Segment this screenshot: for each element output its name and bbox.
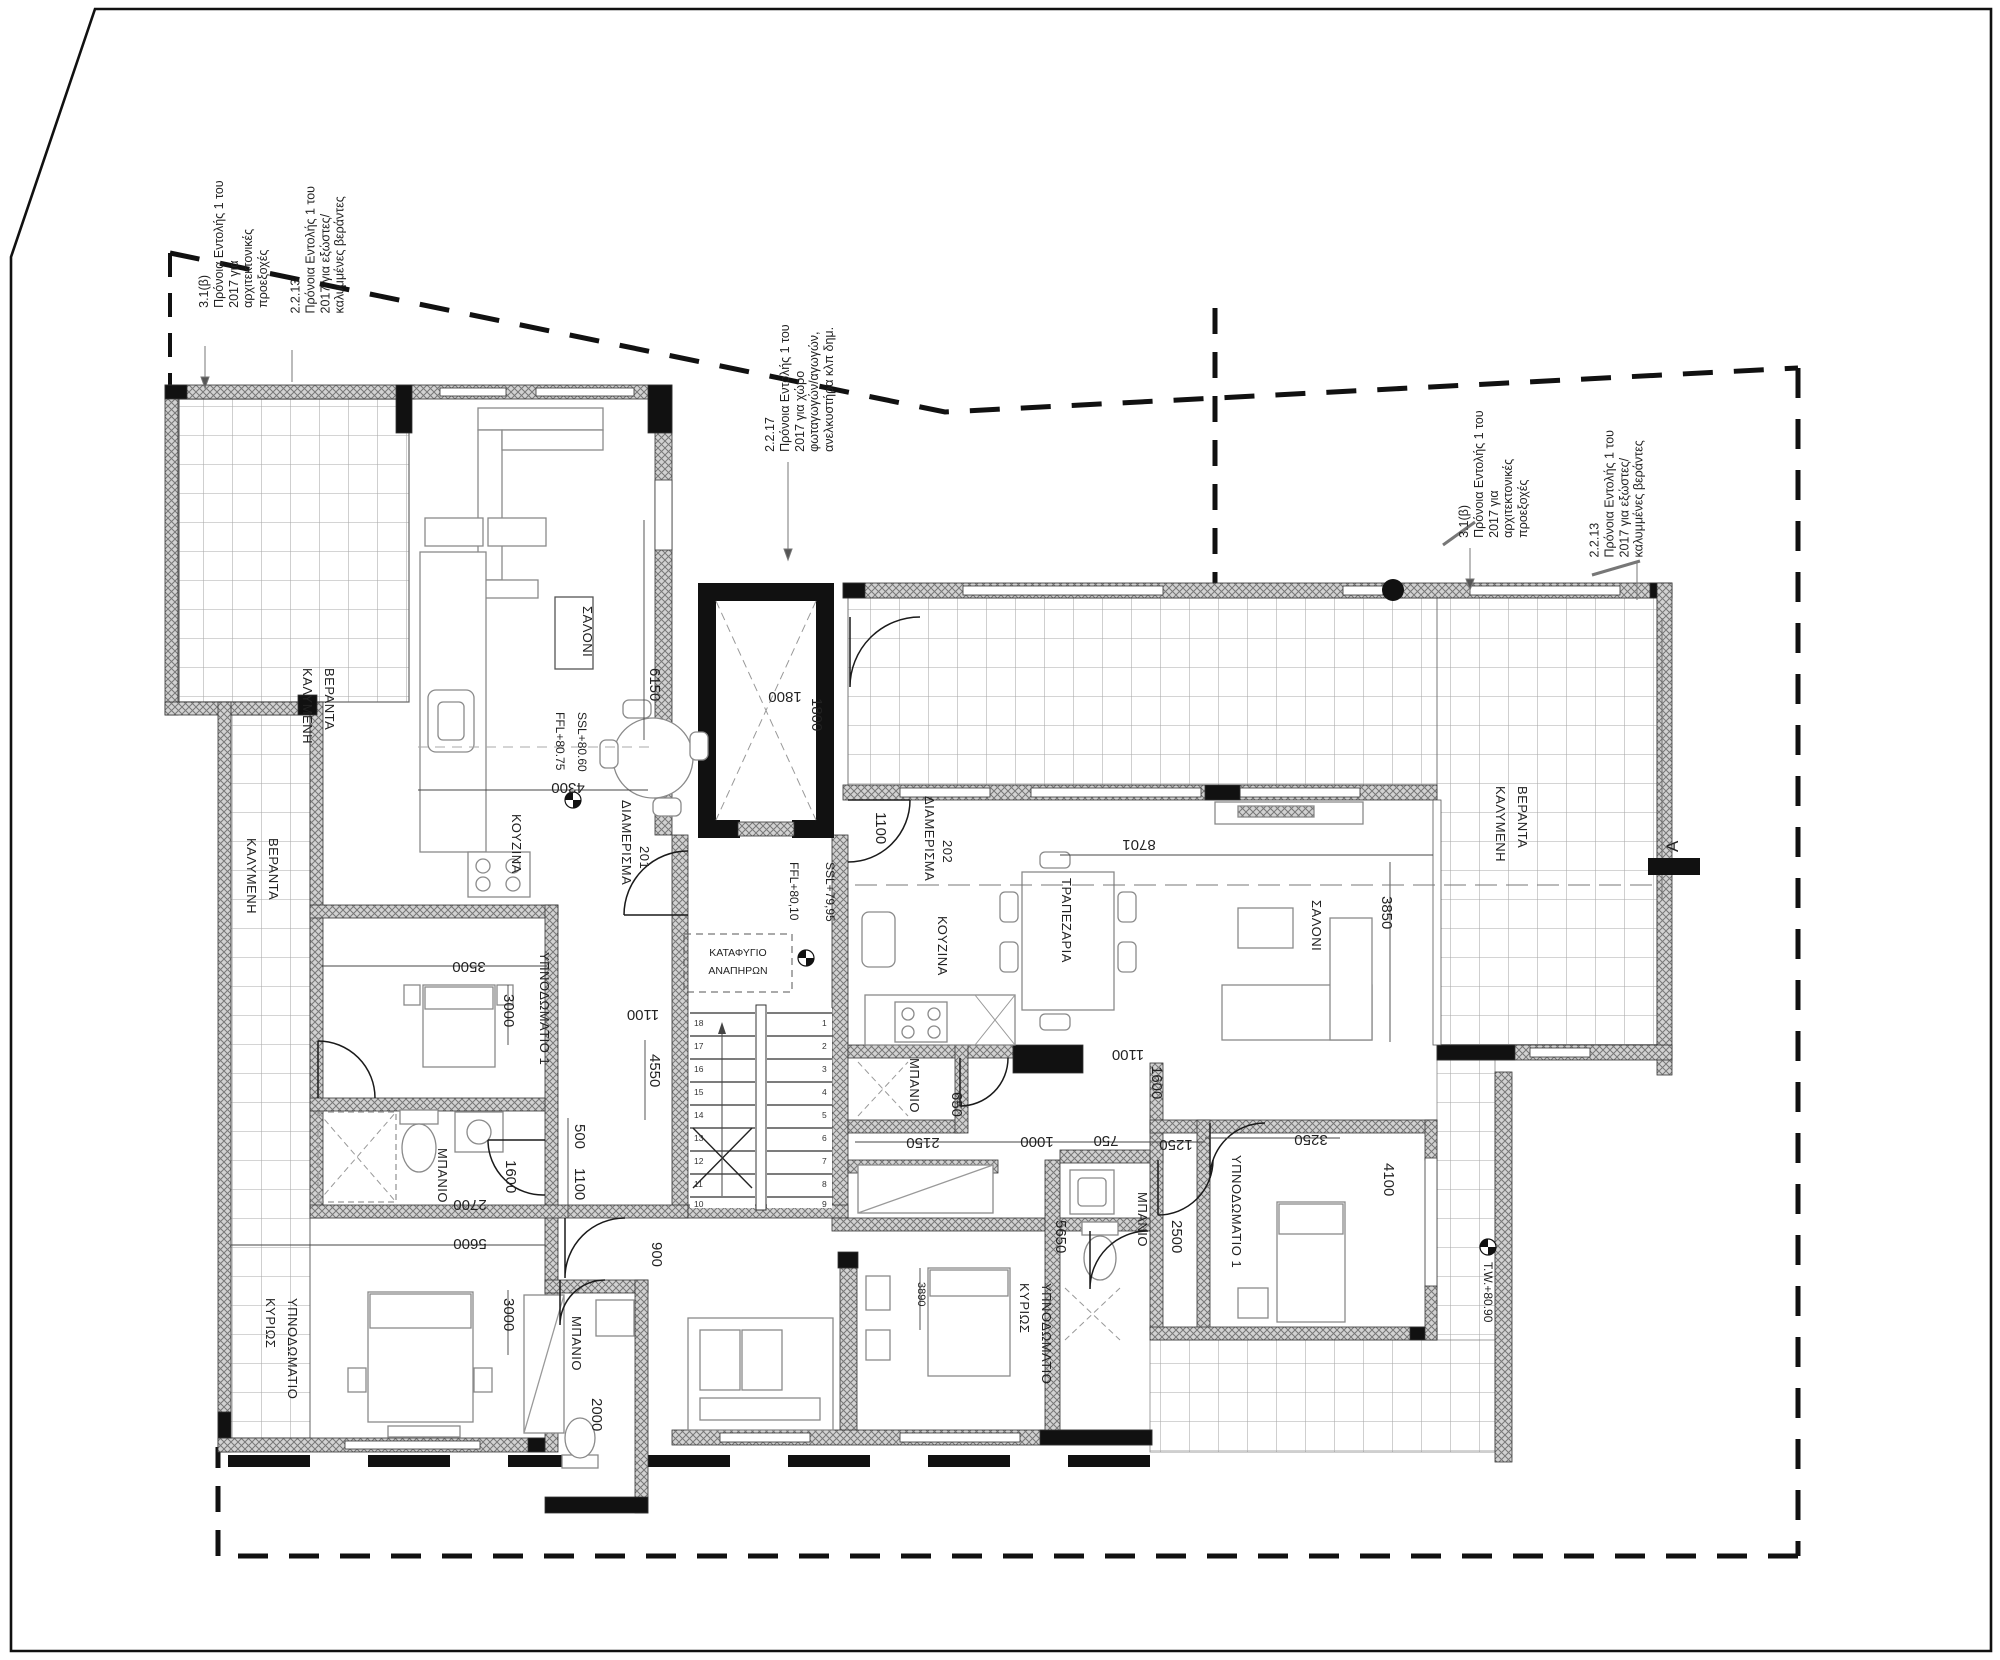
stair-num: 15 <box>694 1087 704 1097</box>
level-ffl-201: FFL+80.75 <box>553 712 567 771</box>
dim-900: 900 <box>648 1242 665 1267</box>
annotation-middle-elevator: 2.2.17 Πρόνοια Εντολής 1 του 2017 για χώ… <box>763 312 837 452</box>
wall-cabinet <box>488 518 546 546</box>
apartment-label-201: ΔΙΑΜΕΡΙΣΜΑ <box>619 800 634 885</box>
dim-6150: 6150 <box>646 668 663 701</box>
dim-elev-h: 1800 <box>808 698 825 731</box>
bench <box>388 1426 460 1437</box>
shelter-label-1: ΚΑΤΑΦΥΓΙΟ <box>709 947 766 959</box>
room-label-kitchen-201: ΚΟΥΖΙΝΑ <box>509 814 524 874</box>
level-marker-tw <box>1480 1239 1496 1255</box>
room-label-bath2-201: ΜΠΑΝΙΟ <box>569 1316 584 1371</box>
stair-num: 8 <box>822 1179 827 1189</box>
shower <box>1065 1288 1120 1340</box>
dim-3000a: 3000 <box>500 994 517 1027</box>
stair-num: 13 <box>694 1133 704 1143</box>
toilet-tank <box>1082 1222 1118 1235</box>
window <box>720 1433 810 1442</box>
annotation-left-balconies: 2.2.13 Πρόνοια Εντολής 1 του 2017 για εξ… <box>289 174 348 314</box>
room-label-veranda-tl-1: ΚΑΛΥΜΕΝΗ <box>300 668 315 744</box>
room-label-master-201-2: ΥΠΝΟΔΩΜΑΤΙΟ <box>285 1298 300 1399</box>
level-ssl-201: SSL+80.60 <box>575 712 589 772</box>
dim-2700: 2700 <box>453 1196 486 1213</box>
room-label-kitchen-202: ΚΟΥΖΙΝΑ <box>935 916 950 976</box>
stair-num: 12 <box>694 1156 704 1166</box>
dim-1100b-201: 1100 <box>627 1006 659 1023</box>
room-label-bedroom1-201: ΥΠΝΟΔΩΜΑΤΙΟ 1 <box>537 952 552 1065</box>
toilet <box>402 1124 436 1172</box>
stair-num: 11 <box>694 1179 703 1189</box>
dim-1600-201: 1600 <box>502 1160 519 1193</box>
stair-divider <box>756 1005 766 1210</box>
door-201-master <box>565 1218 625 1278</box>
dim-1100b-202: 1100 <box>1112 1046 1144 1063</box>
dim-4550: 4550 <box>646 1054 663 1087</box>
stair-num: 5 <box>822 1110 827 1120</box>
sink <box>1070 1170 1114 1214</box>
window <box>1240 788 1360 797</box>
stair-num: 7 <box>822 1156 827 1166</box>
level-marker-core <box>798 950 814 966</box>
window <box>1470 586 1620 595</box>
annotation-right-balconies: 2.2.13 Πρόνοια Εντολής 1 του 2017 για εξ… <box>1588 418 1647 558</box>
armchair <box>1238 908 1293 948</box>
veranda-right <box>1437 598 1657 1045</box>
window <box>900 1433 1020 1442</box>
apartment-label-202: ΔΙΑΜΕΡΙΣΜΑ <box>922 796 937 881</box>
dim-5650: 5650 <box>1052 1220 1069 1253</box>
sink <box>596 1300 634 1336</box>
glass-wall <box>1433 800 1441 1045</box>
wall-black <box>545 1497 648 1513</box>
room-label-veranda-tl-2: ΒΕΡΑΝΤΑ <box>322 668 337 730</box>
stair-num: 2 <box>822 1041 827 1051</box>
stair-num: 10 <box>694 1199 704 1209</box>
room-label-master-202-1: ΚΥΡΙΩΣ <box>1017 1283 1032 1333</box>
stair-num: 17 <box>694 1041 704 1051</box>
room-label-veranda-right-1: ΚΑΛΥΜΕΝΗ <box>1493 786 1508 862</box>
dim-650: 650 <box>948 1092 965 1117</box>
stair-num: 6 <box>822 1133 827 1143</box>
window <box>900 788 990 797</box>
window <box>1530 1048 1590 1057</box>
sofa <box>478 408 603 430</box>
stair-num: 16 <box>694 1064 704 1074</box>
room-label-wc-202: ΜΠΑΝΙΟ <box>907 1058 922 1113</box>
wall-cabinet <box>425 518 483 546</box>
stair-num: 4 <box>822 1087 827 1097</box>
stair-num: 1 <box>822 1018 827 1028</box>
stair-flight-right <box>767 1008 832 1208</box>
tv <box>1238 806 1314 817</box>
room-label-veranda-right-2: ΒΕΡΑΝΤΑ <box>1515 786 1530 848</box>
room-label-dining-202: ΤΡΑΠΕΖΑΡΙΑ <box>1059 878 1074 963</box>
toilet-tank <box>400 1110 438 1124</box>
kitchen-sink <box>862 912 895 967</box>
side-table <box>1238 1288 1268 1318</box>
veranda-top-left <box>179 399 409 702</box>
dim-elev-w: 1800 <box>768 688 801 705</box>
dim-3850: 3850 <box>1378 896 1395 929</box>
dim-1250: 1250 <box>1159 1136 1192 1153</box>
level-ssl-core: SSL+79,95 <box>823 862 837 922</box>
dim-8701: 8701 <box>1122 836 1155 853</box>
dim-1600-202: 1600 <box>1148 1066 1165 1099</box>
stair-num: 9 <box>822 1199 827 1209</box>
floor-plan-sheet: ΚΑΛΥΜΕΝΗ ΒΕΡΑΝΤΑ ΣΑΛΟΝΙ ΚΟΥΖΙΝΑ ΔΙΑΜΕΡΙΣ… <box>0 0 2000 1660</box>
dim-3890: 3890 <box>915 1282 927 1306</box>
room-label-bath-202: ΜΠΑΝΙΟ <box>1135 1192 1150 1247</box>
tw-wall <box>1495 1072 1512 1462</box>
dim-1100a-201: 1100 <box>571 1168 588 1200</box>
dim-750: 750 <box>1093 1132 1118 1149</box>
dining-table <box>613 718 693 798</box>
dim-1100a-202: 1100 <box>872 812 889 844</box>
annotation-leaders <box>201 346 1640 600</box>
window <box>536 388 634 396</box>
window <box>655 480 672 550</box>
door-201-bedroom1 <box>318 1041 375 1098</box>
window <box>440 388 506 396</box>
room-label-veranda-side-1: ΚΑΛΥΜΕΝΗ <box>244 838 259 914</box>
stairs <box>690 1005 832 1210</box>
shower <box>858 1062 908 1116</box>
sink <box>455 1112 503 1152</box>
shelter-box <box>684 934 792 992</box>
stair-num: 18 <box>694 1018 704 1028</box>
window <box>1425 1158 1437 1288</box>
window <box>1031 788 1201 797</box>
window <box>1343 586 1383 595</box>
room-label-living-202: ΣΑΛΟΝΙ <box>1309 900 1324 951</box>
window <box>345 1441 480 1449</box>
stair-num: 14 <box>694 1110 704 1120</box>
level-tw: T.W.+80.90 <box>1481 1262 1495 1323</box>
room-label-master-202-2: ΥΠΝΟΔΩΜΑΤΙΟ <box>1039 1283 1054 1384</box>
room-label-master-201-1: ΚΥΡΙΩΣ <box>263 1298 278 1348</box>
apartment-number-202: 202 <box>940 840 955 863</box>
shelter-label-2: ΑΝΑΠΗΡΩΝ <box>708 965 767 977</box>
dim-3000b: 3000 <box>500 1298 517 1331</box>
room-label-bath-201: ΜΠΑΝΙΟ <box>435 1148 450 1203</box>
column-dot <box>1382 579 1404 601</box>
window <box>963 586 1163 595</box>
terrace-bottom-right <box>1150 1340 1495 1452</box>
dim-4300: 4300 <box>551 779 584 796</box>
dim-3500: 3500 <box>452 958 485 975</box>
toilet <box>1084 1236 1116 1280</box>
level-ffl-core: FFL+80,10 <box>787 862 801 921</box>
section-flag <box>1648 858 1700 875</box>
dim-5600: 5600 <box>453 1235 486 1252</box>
room-label-living-201: ΣΑΛΟΝΙ <box>580 606 595 657</box>
stair-num: 3 <box>822 1064 827 1074</box>
dim-1000: 1000 <box>1020 1133 1053 1150</box>
section-letter: A <box>1663 840 1682 852</box>
dim-2000: 2000 <box>588 1398 605 1431</box>
annotation-right-arch: 3.1(β) Πρόνοια Εντολής 1 του 2017 για αρ… <box>1457 398 1531 538</box>
room-label-veranda-side-2: ΒΕΡΑΝΤΑ <box>266 838 281 900</box>
apartment-number-201: 201 <box>637 846 652 869</box>
dim-2150: 2150 <box>906 1134 939 1151</box>
sofa <box>688 1318 833 1430</box>
room-label-bedroom1-202: ΥΠΝΟΔΩΜΑΤΙΟ 1 <box>1229 1155 1244 1268</box>
annotation-left-arch: 3.1(β) Πρόνοια Εντολής 1 του 2017 για αρ… <box>197 168 271 308</box>
dim-4100: 4100 <box>1380 1163 1397 1196</box>
dim-2500: 2500 <box>1168 1220 1185 1253</box>
dim-500: 500 <box>571 1124 588 1149</box>
shaft-cross <box>716 601 816 820</box>
dim-3250: 3250 <box>1294 1131 1327 1148</box>
